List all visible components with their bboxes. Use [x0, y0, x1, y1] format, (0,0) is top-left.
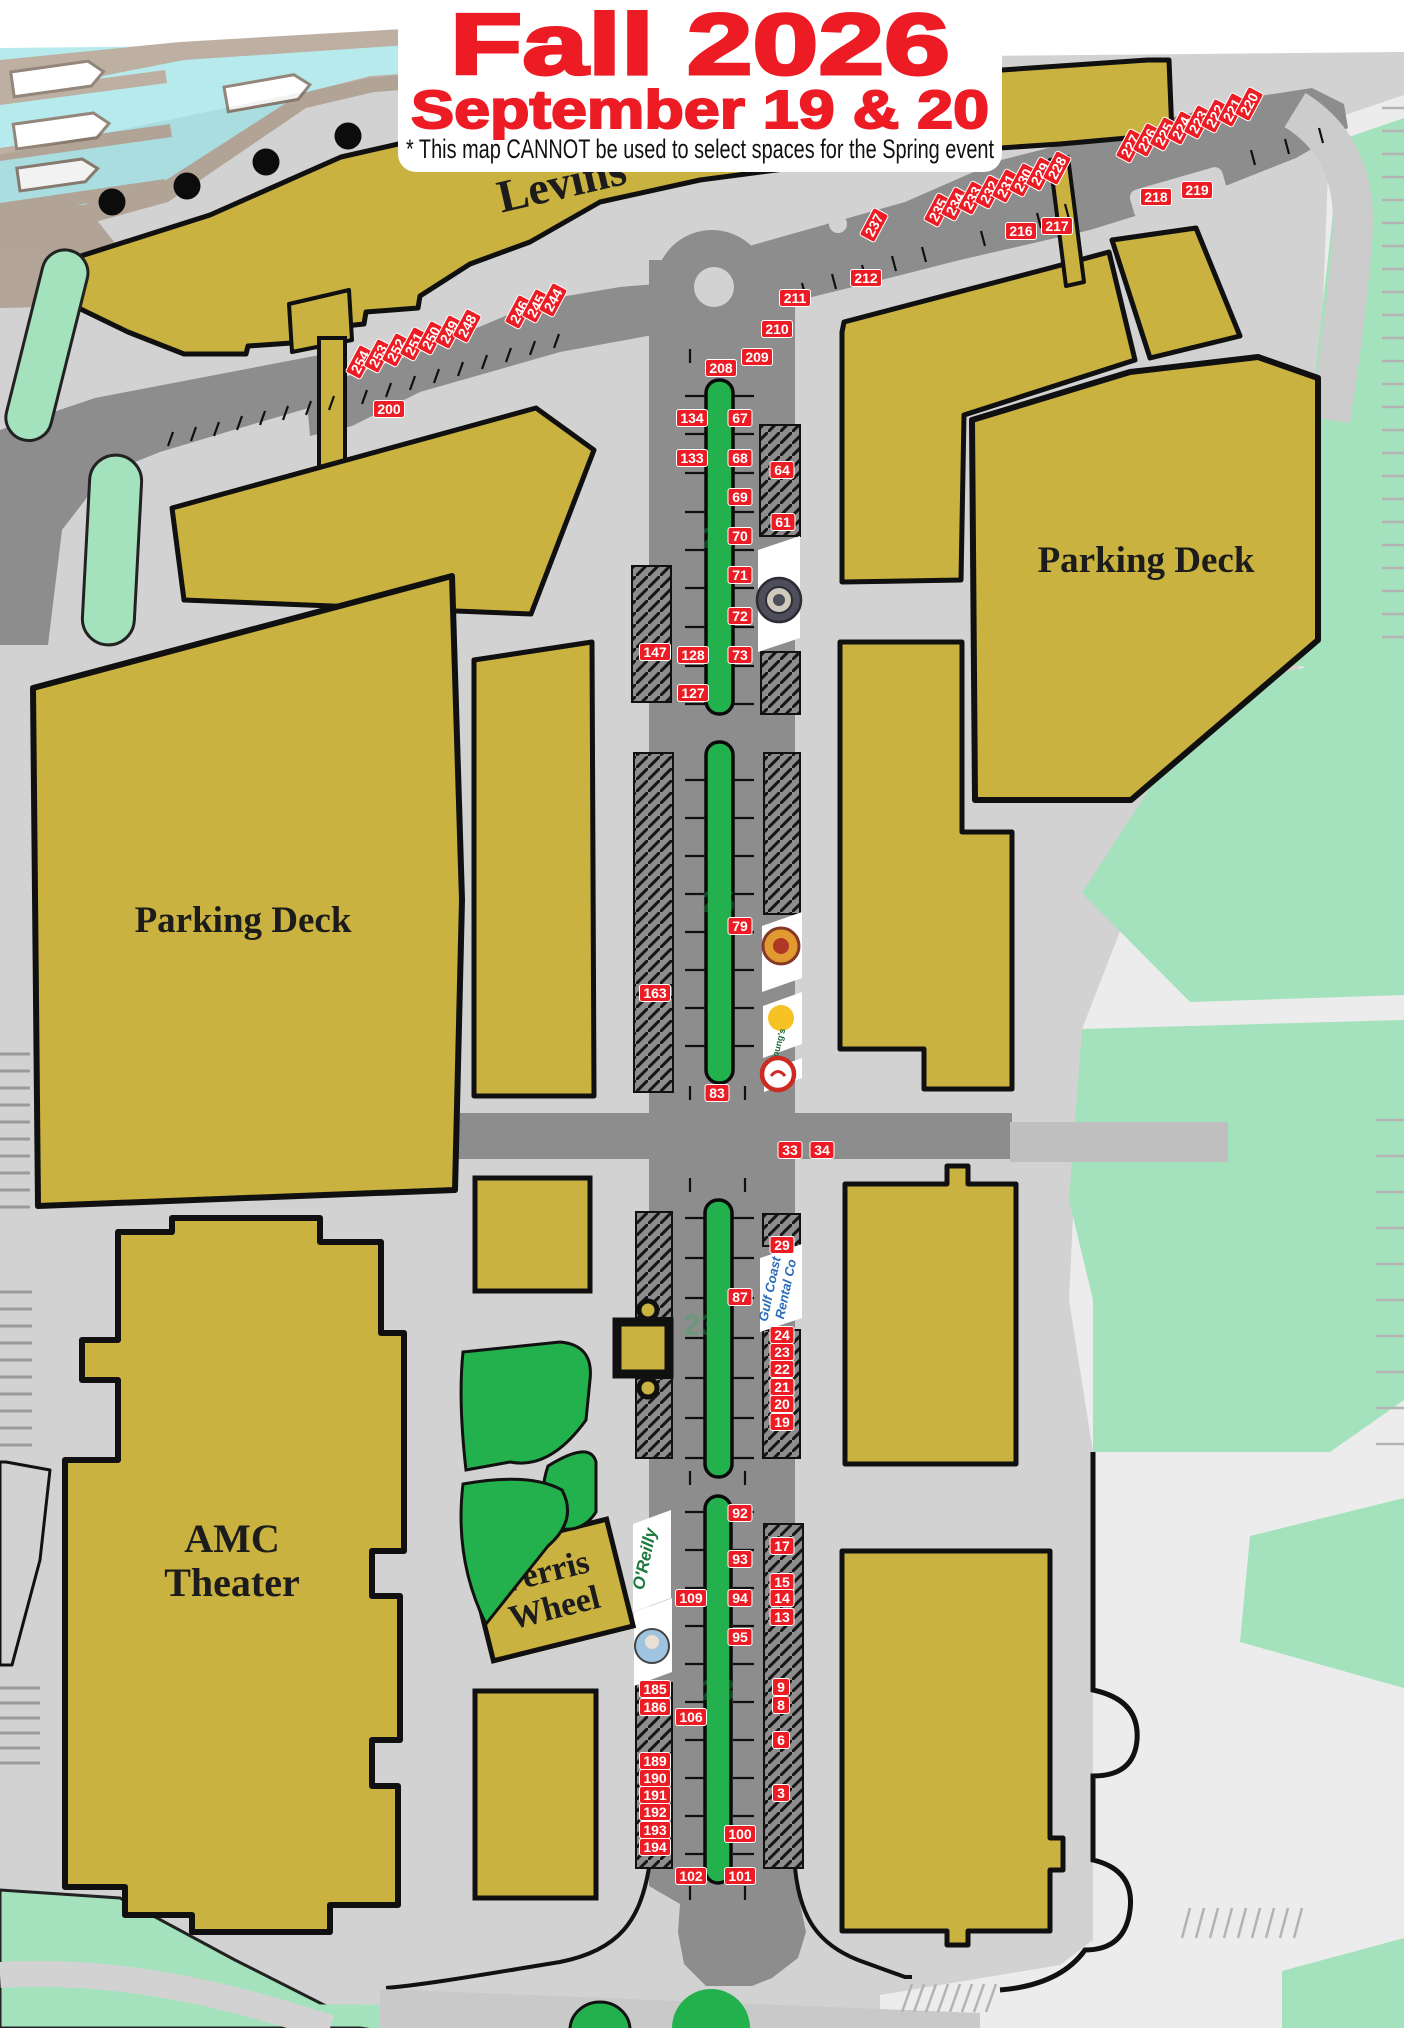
svg-text:190: 190	[643, 1770, 667, 1786]
svg-text:216: 216	[1009, 223, 1033, 239]
svg-text:33: 33	[782, 1142, 798, 1158]
svg-text:101: 101	[728, 1868, 752, 1884]
svg-text:9: 9	[777, 1679, 785, 1695]
svg-text:134: 134	[680, 410, 704, 426]
svg-text:34: 34	[814, 1142, 830, 1158]
svg-text:193: 193	[643, 1822, 667, 1838]
svg-text:106: 106	[679, 1709, 703, 1725]
svg-text:8: 8	[777, 1697, 785, 1713]
svg-text:128: 128	[681, 647, 705, 663]
svg-text:73: 73	[732, 647, 748, 663]
svg-text:22: 22	[774, 1361, 790, 1377]
svg-text:Parking Deck: Parking Deck	[135, 900, 352, 941]
svg-text:61: 61	[775, 514, 791, 530]
svg-text:70: 70	[732, 528, 748, 544]
svg-text:100: 100	[728, 1826, 752, 1842]
svg-text:68: 68	[732, 450, 748, 466]
svg-text:23: 23	[701, 1674, 734, 1707]
svg-text:Theater: Theater	[164, 1560, 300, 1605]
svg-text:127: 127	[681, 685, 705, 701]
svg-text:208: 208	[709, 360, 733, 376]
svg-text:24: 24	[774, 1327, 790, 1343]
svg-text:72: 72	[732, 608, 748, 624]
svg-text:23: 23	[683, 1309, 716, 1342]
svg-text:109: 109	[679, 1590, 703, 1606]
svg-text:147: 147	[643, 644, 667, 660]
svg-text:189: 189	[643, 1753, 667, 1769]
svg-text:23: 23	[774, 1344, 790, 1360]
svg-text:133: 133	[680, 450, 704, 466]
svg-text:210: 210	[765, 321, 789, 337]
svg-text:21: 21	[774, 1379, 790, 1395]
svg-text:92: 92	[732, 1505, 748, 1521]
svg-text:6: 6	[777, 1732, 785, 1748]
svg-text:94: 94	[732, 1590, 748, 1606]
svg-text:192: 192	[643, 1804, 667, 1820]
svg-text:AMC: AMC	[184, 1516, 280, 1561]
svg-text:185: 185	[643, 1681, 667, 1697]
svg-text:211: 211	[784, 290, 807, 306]
svg-text:218: 218	[1144, 189, 1168, 205]
svg-text:102: 102	[679, 1868, 703, 1884]
svg-text:186: 186	[643, 1699, 667, 1715]
svg-text:191: 191	[643, 1787, 667, 1803]
svg-text:* This map CANNOT be used to s: * This map CANNOT be used to select spac…	[406, 134, 994, 164]
svg-text:163: 163	[643, 985, 667, 1001]
svg-text:3: 3	[777, 1785, 785, 1801]
svg-text:29: 29	[774, 1237, 790, 1253]
svg-text:95: 95	[732, 1629, 748, 1645]
svg-text:219: 219	[1185, 182, 1209, 198]
svg-text:200: 200	[377, 401, 401, 417]
svg-text:209: 209	[745, 349, 769, 365]
svg-text:25: 25	[701, 886, 734, 919]
svg-text:67: 67	[732, 410, 748, 426]
svg-text:69: 69	[732, 489, 748, 505]
svg-text:19: 19	[774, 1414, 790, 1430]
svg-text:93: 93	[732, 1551, 748, 1567]
svg-text:79: 79	[732, 918, 748, 934]
svg-text:194: 194	[643, 1839, 667, 1855]
svg-text:217: 217	[1045, 218, 1069, 234]
svg-text:14: 14	[774, 1590, 790, 1606]
svg-text:15: 15	[774, 1574, 790, 1590]
svg-text:87: 87	[732, 1289, 748, 1305]
svg-text:17: 17	[774, 1538, 790, 1554]
svg-text:20: 20	[774, 1396, 790, 1412]
svg-text:September 19 & 20: September 19 & 20	[411, 80, 989, 140]
svg-text:71: 71	[732, 567, 748, 583]
svg-text:64: 64	[774, 462, 790, 478]
svg-text:212: 212	[854, 270, 878, 286]
svg-text:13: 13	[774, 1609, 790, 1625]
svg-text:Parking Deck: Parking Deck	[1038, 540, 1255, 581]
svg-text:83: 83	[709, 1085, 725, 1101]
